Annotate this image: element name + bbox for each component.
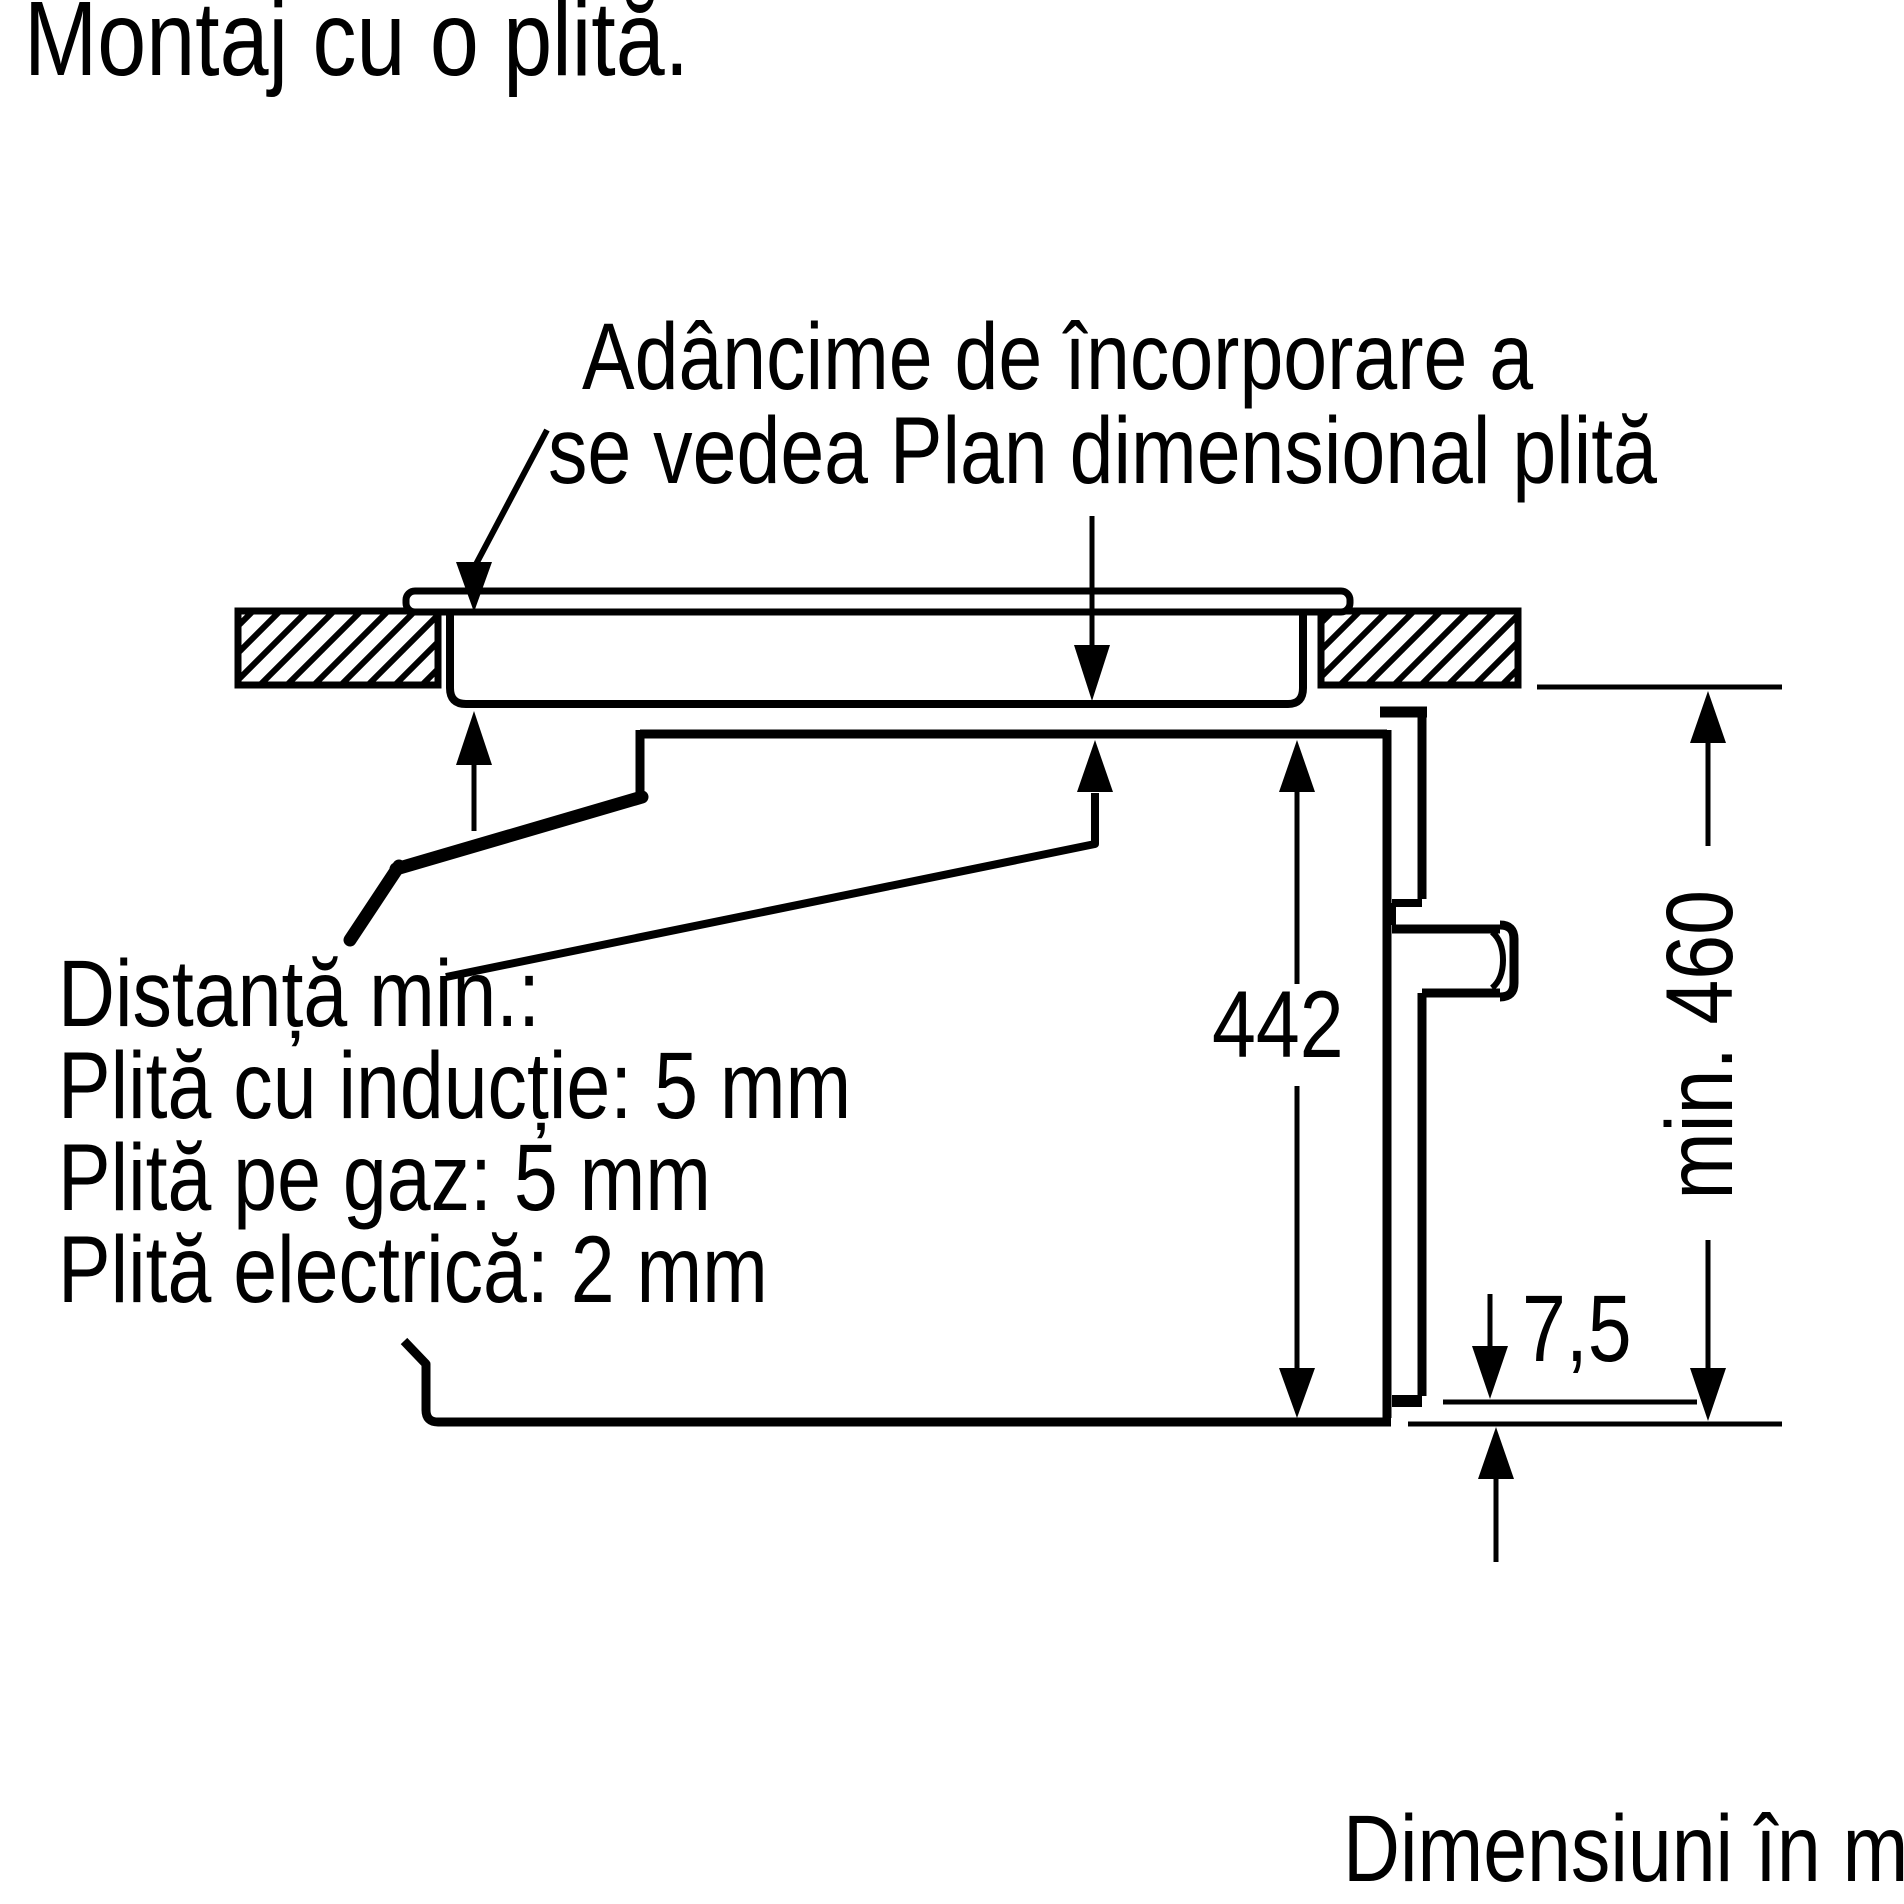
embed-depth-leader [456,430,547,612]
arrow-up-icon [1279,740,1315,792]
embed-depth-note-line1: Adâncime de încorporare a [582,310,1533,405]
arrow-up-icon [456,711,492,765]
min-distance-arrow-left [456,711,492,831]
dimension-label-7-5: 7,5 [1522,1282,1632,1377]
hob-glass-top [406,591,1350,612]
dimension-label-min-460-box: min. 460 [1650,885,1750,1205]
arrow-up-icon [1478,1427,1514,1479]
control-knob [1392,925,1514,997]
worktop-right-section [1321,611,1518,685]
dimension-label-442: 442 [1212,978,1344,1073]
page-title: Montaj cu o plită. [24,0,689,92]
min-distance-line: Plită cu inducție: 5 mm [58,1040,851,1132]
arrow-down-icon [1279,1368,1315,1418]
arrow-down-icon [1472,1346,1508,1399]
min-distance-line: Plită pe gaz: 5 mm [58,1132,851,1224]
units-note: Dimensiuni în mm [1343,1802,1895,1897]
arrow-up-icon [1077,740,1113,792]
arrow-up-icon [1690,691,1726,743]
min-distance-arrow-right [446,740,1113,977]
embed-depth-note-line2: se vedea Plan dimensional plită [548,404,1657,499]
min-distance-line: Distanță min.: [58,948,851,1040]
min-distance-line: Plită electrică: 2 mm [58,1224,851,1316]
installation-diagram-page: Montaj cu o plită. Adâncime de încorpora… [0,0,1904,1904]
arrow-down-icon [1690,1368,1726,1421]
hob-tub-outline [450,605,1303,704]
dimension-label-min-460: min. 460 [1653,890,1748,1200]
dimension-442 [1279,740,1315,1418]
min-distance-note: Distanță min.:Plită cu inducție: 5 mmPli… [58,948,851,1316]
worktop-left-section [238,611,438,685]
